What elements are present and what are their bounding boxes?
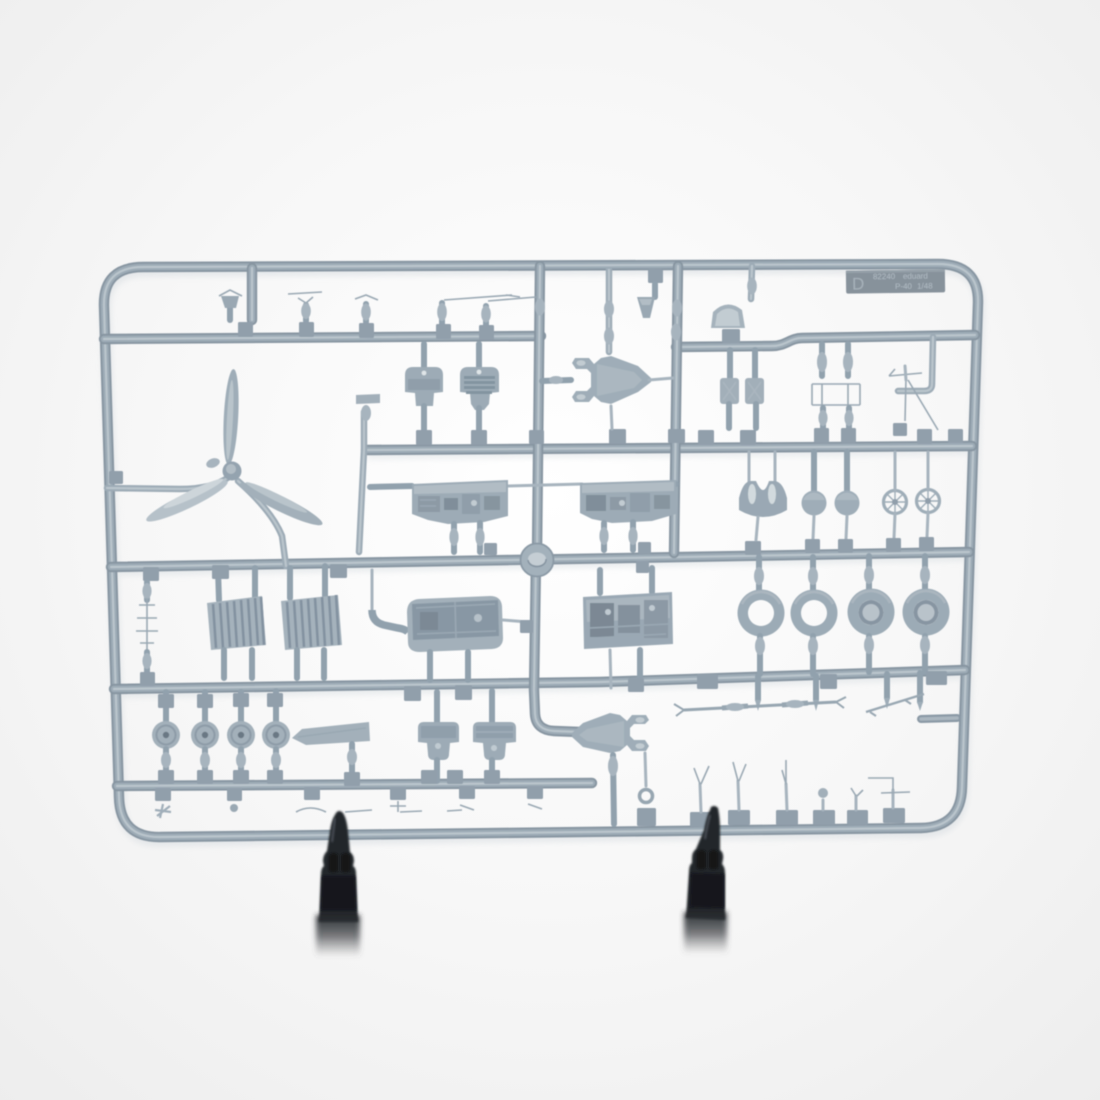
svg-text:P-40: P-40 [895,282,913,291]
svg-text:82240: 82240 [873,272,896,281]
svg-text:D: D [852,274,865,293]
svg-text:eduard: eduard [903,272,928,281]
svg-text:1/48: 1/48 [917,281,933,290]
